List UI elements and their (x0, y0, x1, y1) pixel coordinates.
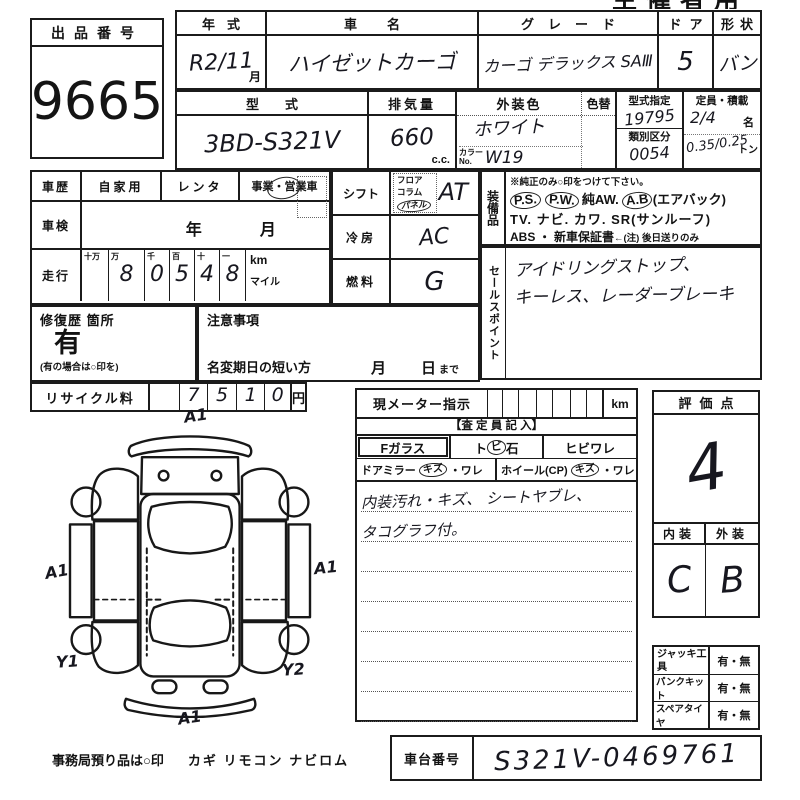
recycle-digit-3: 1 (237, 384, 266, 410)
office-note: 事務局預り品は○印 カギ リモコン ナビロム (52, 750, 349, 769)
shift-block: シフト フロア コラム パネル AT 冷房 AC 燃料 G (331, 170, 480, 305)
jack-tools-value: 有・無 (710, 647, 758, 674)
equipment-line3: ABS ・ 新車保証書 (510, 228, 614, 245)
recycle-digit-blank (150, 384, 180, 410)
chassis-value: S321V-0469761 (494, 739, 741, 778)
chassis-label: 車台番号 (392, 737, 474, 779)
model-cell: 型式 3BD-S321V (177, 92, 369, 168)
fuel-value: G (424, 267, 444, 297)
meter-label: 現メーター指示 (357, 390, 487, 417)
recycle-unit: 円 (292, 384, 305, 410)
damage-mark-rear-right: Y2 (281, 659, 305, 680)
shift-value: AT (439, 178, 468, 206)
shift-option-panel: パネル (397, 198, 431, 212)
spare-tire-value: 有・無 (710, 702, 758, 728)
damage-mark-front: A1 (183, 404, 209, 426)
car-name-label: 車名 (267, 12, 477, 36)
puncture-kit-value: 有・無 (710, 675, 758, 701)
damage-mark-right: A1 (313, 557, 338, 578)
recycle-digit-4: 0 (265, 384, 292, 410)
vehicle-row2: 型式 3BD-S321V 排気量 660 c.c. 外装色 色替 ホワイト カラ… (175, 90, 762, 170)
recycle-digit-2: 5 (208, 384, 237, 410)
repair-note: (有の場合は○印を) (32, 359, 195, 373)
shift-option-column: コラム (397, 186, 436, 198)
mileage-unit-km: km (246, 250, 294, 267)
front-glass-label: Fガラス (358, 437, 448, 457)
car-name-cell: 車名 ハイゼットカーゴ (267, 12, 479, 88)
color-value: ホワイト (472, 112, 545, 142)
jack-tools-label: ジャッキ工具 (654, 647, 710, 674)
assessor-header: 【査 定 員 記 入】 (357, 419, 636, 436)
model-label: 型式 (177, 92, 367, 116)
history-label: 車歴 (32, 172, 82, 200)
capacity-label: 定員・積載 (684, 92, 760, 108)
recycle-label: リサイクル料 (32, 384, 150, 410)
capacity-cell: 定員・積載 2/4 名 0.35/0.25 トン (684, 92, 760, 168)
meter-digit-box (552, 390, 570, 417)
assessor-note-1: 内装汚れ・キズ、 シートヤブレ、 (361, 484, 591, 513)
doors-cell: ドア 5 (659, 12, 714, 88)
color-no-label: カラーNo. (459, 149, 485, 167)
puncture-kit-label: パンクキット (654, 675, 710, 701)
meter-digit-box (586, 390, 602, 417)
equipment-pw: P.W. (544, 191, 579, 210)
shape-value: バン (717, 47, 758, 77)
assessor-note-2: タコグラフ付。 (361, 518, 467, 543)
mileage-col-1: 一 8 (220, 250, 246, 301)
wheel-scratch: キズ (570, 462, 599, 477)
mileage-unit-cell: km マイル (246, 250, 294, 301)
equipment-line2: TV. ナビ. カワ. SR(サンルーフ) (510, 209, 756, 228)
meter-digit-box (536, 390, 552, 417)
score-block: 評価点 4 内装 外装 C B (652, 390, 760, 618)
damage-mark-rear: A1 (177, 706, 203, 728)
equipment-block: 装備品 ※純正のみ○印をつけて下さい。 P.S. P.W. 純AW. A.B(エ… (480, 170, 762, 246)
door-mirror-label: ドアミラー (361, 462, 416, 478)
shift-options: フロア コラム パネル (393, 173, 437, 213)
rename-until-label: まで (439, 361, 459, 376)
type-designation-cell: 型式指定 19795 類別区分 0054 (617, 92, 684, 168)
history-rental: レンタ (162, 172, 240, 200)
aircon-label: 冷房 (333, 216, 391, 258)
displacement-cell: 排気量 660 c.c. (369, 92, 457, 168)
equipment-ab: A.B (622, 190, 654, 210)
aircon-value: AC (418, 223, 450, 251)
capacity-persons-unit: 名 (743, 114, 754, 130)
interior-label: 内装 (654, 524, 706, 543)
sales-point-line1: アイドリングストップ、 (514, 248, 753, 281)
year-label: 年式 (177, 12, 265, 36)
auction-number-box: 出品番号 9665 (30, 18, 164, 159)
assessor-notes: 内装汚れ・キズ、 シートヤブレ、 タコグラフ付。 (357, 482, 636, 722)
grade-cell: グレード カーゴ デラックス SAⅢ (479, 12, 659, 88)
door-mirror-scratch: キズ (418, 462, 447, 477)
capacity-load-unit: トン (738, 141, 758, 156)
sales-point-line2: キーレス、レーダーブレーキ (514, 279, 752, 308)
accessories-block: ジャッキ工具 有・無 パンクキット 有・無 スペアタイヤ 有・無 (652, 645, 760, 730)
mileage-unit-mile: マイル (246, 267, 294, 288)
class-section-value: 0054 (616, 142, 682, 165)
year-unit: 月 (249, 68, 261, 85)
inspection-year-label: 年 (186, 216, 202, 240)
exterior-grade: B (718, 559, 746, 602)
equipment-ab-suffix: (エアバック) (653, 192, 726, 207)
repair-block: 修復歴 箇所 有 (有の場合は○印を) (30, 305, 197, 382)
stone-chip-circle: ビ (487, 439, 507, 455)
color-cell: 外装色 色替 ホワイト カラーNo. W19 (457, 92, 617, 168)
recycle-block: リサイクル料 7 5 1 0 円 (30, 382, 307, 412)
repair-label: 修復歴 箇所 (32, 307, 195, 329)
exterior-label: 外装 (706, 524, 758, 543)
equipment-note: ※純正のみ○印をつけて下さい。 (510, 174, 756, 188)
caution-label: 注意事項 (199, 307, 478, 329)
doors-value: 5 (677, 47, 694, 77)
equipment-ps: P.S. (509, 191, 541, 210)
inspection-month-label: 月 (260, 216, 276, 240)
year-value: R2/11 (188, 48, 254, 76)
displacement-value: 660 (389, 124, 434, 152)
meter-digit-box (518, 390, 536, 417)
shape-label: 形状 (714, 12, 760, 36)
meter-block: 現メーター指示 km 【査 定 員 記 入】 Fガラス トビ石 ヒビワレ (355, 388, 638, 722)
auction-sheet: 主催者用 出品番号 9665 年式 R2/11 月 車名 ハイゼットカーゴ グレ… (0, 0, 800, 800)
rename-month-label: 月 (371, 357, 386, 378)
shift-option-floor: フロア (397, 174, 436, 186)
model-value: 3BD-S321V (203, 126, 340, 159)
spare-tire-label: スペアタイヤ (654, 702, 710, 728)
capacity-persons: 2/4 (690, 108, 716, 127)
caution-block: 注意事項 名変期日の短い方 月 日 まで (197, 305, 480, 382)
year-cell: 年式 R2/11 月 (177, 12, 267, 88)
damage-mark-left: A1 (44, 560, 70, 583)
chassis-block: 車台番号 S321V-0469761 (390, 735, 762, 781)
fuel-label: 燃料 (333, 260, 391, 303)
office-note-items: カギ リモコン ナビロム (188, 750, 349, 769)
stone-chip-label: トビ石 (451, 436, 544, 458)
equipment-aw: 純AW. (582, 192, 619, 207)
equipment-label: 装備品 (482, 172, 506, 244)
corner-header-text: 主催者用 (612, 0, 798, 9)
meter-digit-box (570, 390, 586, 417)
mileage-col-1k: 千 0 (145, 250, 170, 301)
equipment-line1: P.S. P.W. 純AW. A.B(エアバック) (510, 189, 756, 209)
meter-digit-box (502, 390, 518, 417)
inspection-label: 車検 (32, 202, 82, 248)
mileage-col-10: 十 4 (195, 250, 220, 301)
car-diagram (62, 418, 318, 718)
grade-label: グレード (479, 12, 657, 36)
type-designation-value: 19795 (616, 105, 683, 131)
color-label: 外装色 (457, 92, 581, 115)
car-name-value: ハイゼットカーゴ (288, 46, 456, 79)
interior-grade: C (665, 559, 694, 602)
sales-point-label: セールスポイント (482, 248, 506, 378)
mileage-col-100k: 十万 (82, 250, 109, 301)
office-note-label: 事務局預り品は○印 (52, 750, 164, 769)
rename-day-label: 日 (421, 357, 436, 378)
wheel-label: ホイール(CP) (501, 462, 568, 478)
mileage-col-10k: 万 8 (109, 250, 145, 301)
crack-label: ヒビワレ (544, 436, 636, 458)
corner-header-strip: 主催者用 (612, 0, 798, 9)
meter-digit-box (487, 390, 502, 417)
displacement-label: 排気量 (369, 92, 455, 116)
mileage-label: 走行 (32, 250, 82, 301)
history-private: 自家用 (82, 172, 162, 200)
equipment-line3-note: ←(注) 後日送りのみ (614, 230, 699, 244)
auction-number-value: 9665 (32, 47, 162, 157)
doors-label: ドア (659, 12, 712, 36)
mileage-check-box (297, 176, 327, 218)
vehicle-row1: 年式 R2/11 月 車名 ハイゼットカーゴ グレード カーゴ デラックス SA… (175, 10, 762, 90)
auction-number-label: 出品番号 (32, 20, 162, 47)
rename-deadline-label: 名変期日の短い方 (207, 357, 311, 376)
damage-mark-rear-left: Y1 (55, 651, 79, 672)
grade-value: カーゴ デラックス SAⅢ (483, 47, 654, 77)
mileage-col-100: 百 5 (170, 250, 195, 301)
shape-cell: 形状 バン (714, 12, 760, 88)
sales-point-block: セールスポイント アイドリングストップ、 キーレス、レーダーブレーキ (480, 246, 762, 380)
color-change-label: 色替 (581, 92, 615, 115)
repair-value: 有 (32, 329, 195, 359)
meter-unit: km (602, 390, 636, 417)
color-no-value: W19 (485, 148, 523, 168)
score-value: 4 (680, 429, 733, 509)
displacement-unit: c.c. (432, 154, 450, 166)
shift-label: シフト (333, 172, 391, 214)
score-label: 評価点 (654, 392, 758, 415)
